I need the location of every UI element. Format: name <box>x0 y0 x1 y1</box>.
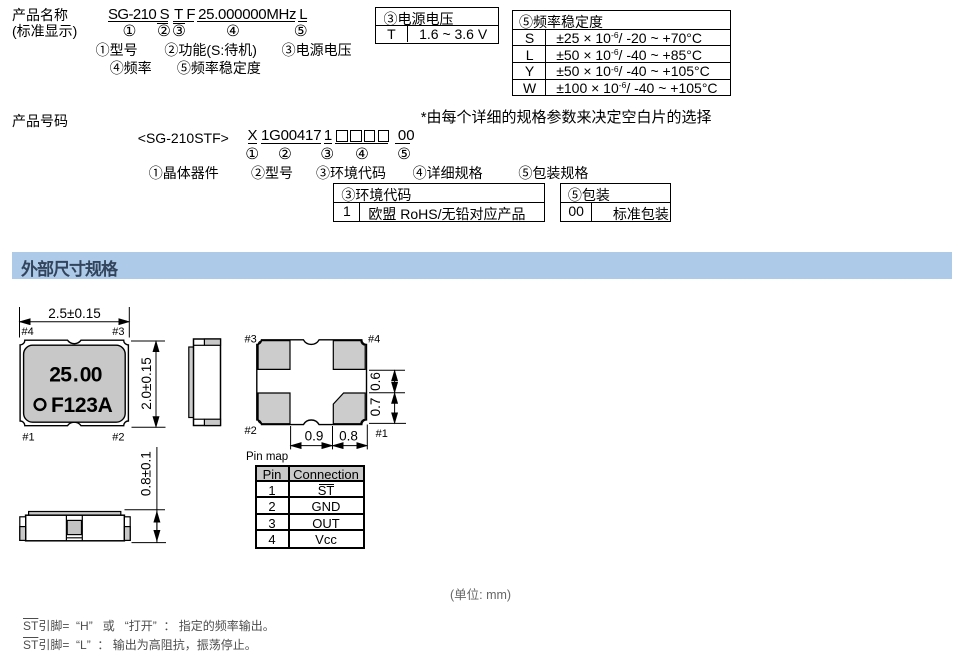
svg-text:#4: #4 <box>368 334 380 346</box>
svg-text:0.7: 0.7 <box>368 398 383 417</box>
svg-text:#2: #2 <box>112 432 124 444</box>
svg-text:25.00: 25.00 <box>49 363 101 386</box>
svg-text:2.5±0.15: 2.5±0.15 <box>48 306 100 321</box>
svg-text:#3: #3 <box>112 326 124 338</box>
svg-text:#4: #4 <box>22 326 34 338</box>
svg-text:2.0±0.15: 2.0±0.15 <box>139 357 154 409</box>
svg-text:#3: #3 <box>245 334 257 346</box>
svg-text:0.6: 0.6 <box>368 372 383 391</box>
svg-text:#2: #2 <box>245 425 257 437</box>
svg-text:0.8: 0.8 <box>339 429 358 444</box>
svg-text:0.8±0.1: 0.8±0.1 <box>139 451 154 496</box>
svg-text:F123A: F123A <box>51 394 113 417</box>
svg-text:#1: #1 <box>22 432 34 444</box>
svg-text:0.9: 0.9 <box>305 429 324 444</box>
svg-text:#1: #1 <box>376 428 388 440</box>
